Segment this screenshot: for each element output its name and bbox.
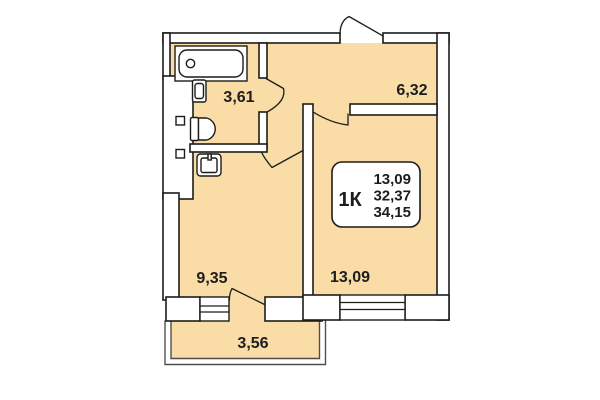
wall-right — [437, 33, 449, 320]
unit-room-area: 13,09 — [373, 171, 411, 188]
kitchen-window-gap — [200, 297, 229, 321]
vent-shaft-icon — [176, 150, 185, 159]
living-room-area-label: 13,09 — [330, 269, 370, 286]
wall-bathroom-right-upper — [259, 43, 267, 78]
toilet-icon — [191, 118, 216, 141]
balcony-area-label: 3,56 — [237, 335, 268, 352]
wall-left-kitchen — [163, 193, 179, 300]
floor-plan: 1К 13,09 32,37 34,15 3,61 6,32 9,35 13,0… — [0, 0, 600, 400]
unit-type-label: 1К — [338, 189, 362, 211]
entrance-opening — [341, 32, 382, 43]
hallway-area-label: 6,32 — [396, 82, 427, 99]
living-room-window — [340, 295, 405, 320]
wall-bathroom-right-lower — [259, 112, 267, 148]
wall-living-left — [303, 104, 313, 296]
vent-shaft-icon — [176, 117, 185, 126]
washbasin-icon — [193, 80, 207, 102]
bathtub-icon — [175, 46, 247, 81]
kitchen-window — [200, 297, 229, 321]
kitchen-area-label: 9,35 — [196, 270, 227, 287]
kitchen-sink-icon — [197, 154, 221, 176]
wall-bathroom-bottom — [190, 144, 267, 152]
floor-plan-page: 1К 13,09 32,37 34,15 3,61 6,32 9,35 13,0… — [0, 0, 600, 400]
unit-total-area: 34,15 — [373, 204, 411, 221]
wall-top-left — [163, 33, 340, 43]
wall-kitchen-bottom-left — [166, 297, 200, 321]
living-window-gap — [340, 295, 405, 320]
unit-living-total-area: 32,37 — [373, 188, 411, 205]
wall-living-bottom-right — [405, 295, 449, 320]
wall-living-bottom-left — [303, 295, 340, 320]
wall-left-upper — [163, 33, 170, 80]
bathroom-area-label: 3,61 — [223, 89, 254, 106]
wall-hall-bottom — [350, 104, 437, 115]
wall-left-shaft — [163, 76, 193, 199]
unit-info-card: 1К 13,09 32,37 34,15 — [332, 162, 420, 227]
balcony-door-floor — [229, 296, 265, 322]
